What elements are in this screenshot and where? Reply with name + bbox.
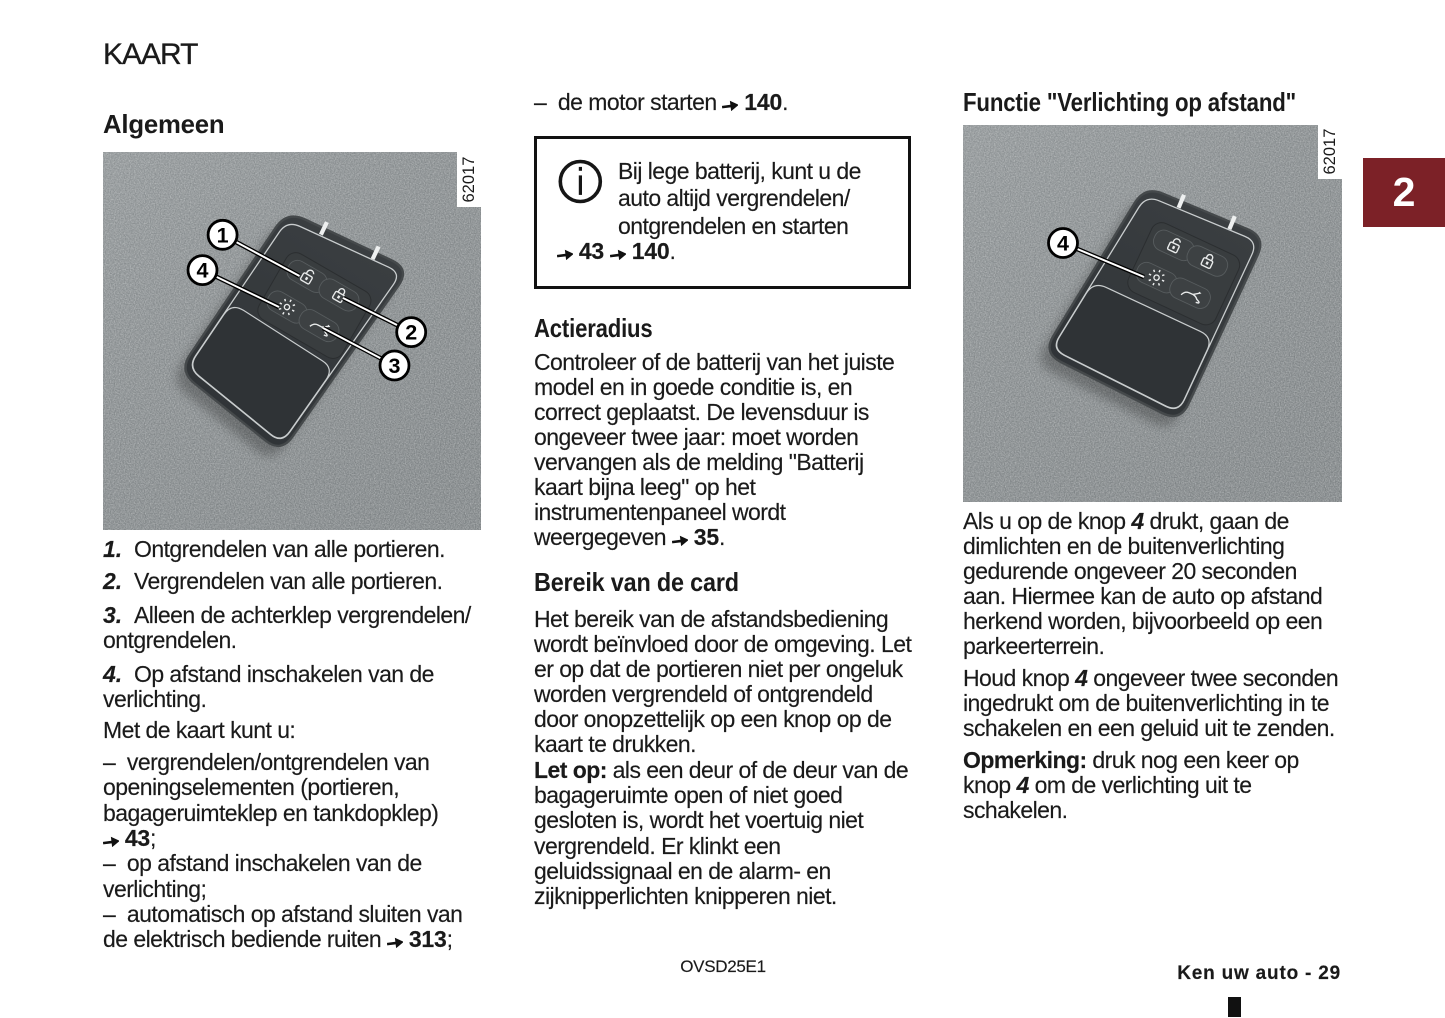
svg-text:62017: 62017	[1321, 129, 1339, 175]
svg-text:4: 4	[1057, 232, 1069, 256]
svg-text:1: 1	[217, 223, 229, 247]
svg-text:4: 4	[197, 259, 209, 283]
svg-text:3: 3	[389, 354, 401, 378]
svg-text:62017: 62017	[460, 157, 478, 203]
svg-text:2: 2	[405, 321, 417, 345]
